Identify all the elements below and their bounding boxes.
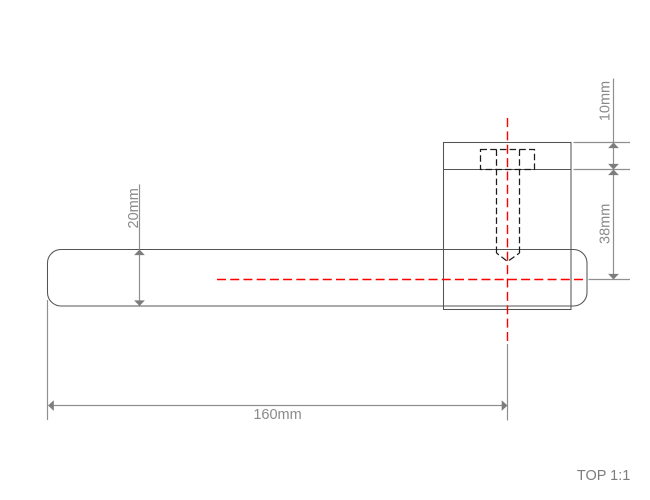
svg-text:20mm: 20mm	[126, 188, 142, 228]
svg-text:10mm: 10mm	[598, 81, 614, 121]
svg-text:TOP 1:1: TOP 1:1	[577, 468, 630, 484]
svg-text:38mm: 38mm	[598, 204, 614, 244]
svg-text:160mm: 160mm	[253, 407, 301, 423]
